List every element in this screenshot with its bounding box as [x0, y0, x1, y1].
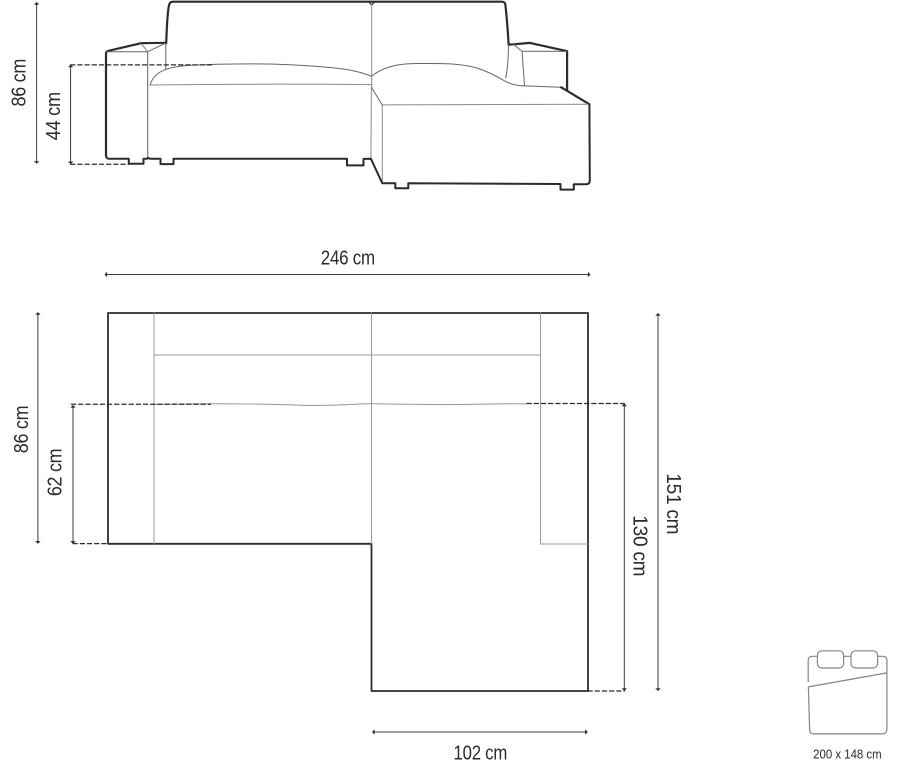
- svg-text:44 cm: 44 cm: [43, 92, 65, 140]
- svg-text:62 cm: 62 cm: [45, 449, 67, 497]
- svg-text:151 cm: 151 cm: [662, 473, 684, 534]
- svg-text:102 cm: 102 cm: [454, 743, 508, 765]
- svg-text:246 cm: 246 cm: [321, 248, 375, 270]
- svg-text:200 x 148 cm: 200 x 148 cm: [813, 747, 882, 762]
- svg-text:86 cm: 86 cm: [9, 59, 31, 107]
- svg-text:130 cm: 130 cm: [629, 515, 651, 576]
- svg-text:86 cm: 86 cm: [11, 406, 33, 454]
